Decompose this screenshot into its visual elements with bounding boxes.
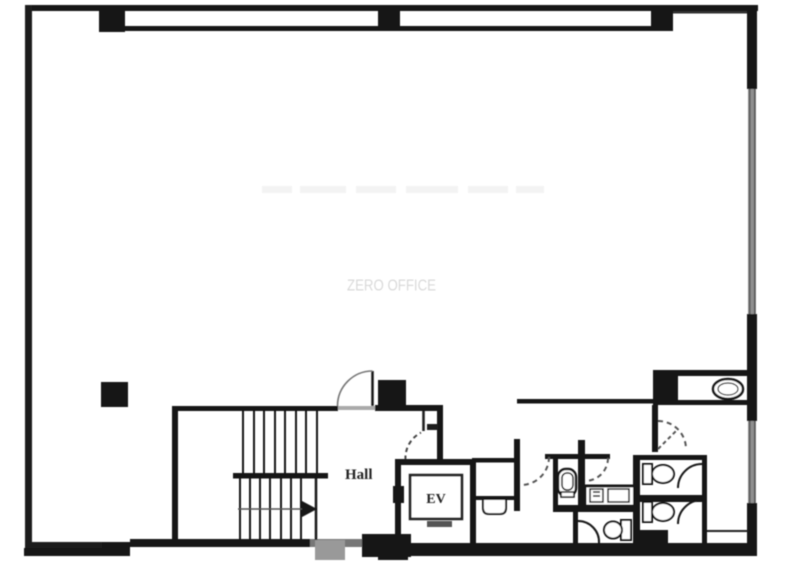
svg-text:ZERO OFFICE: ZERO OFFICE [347,278,436,295]
svg-text:EV: EV [426,492,445,507]
svg-text:Hall: Hall [345,467,373,483]
